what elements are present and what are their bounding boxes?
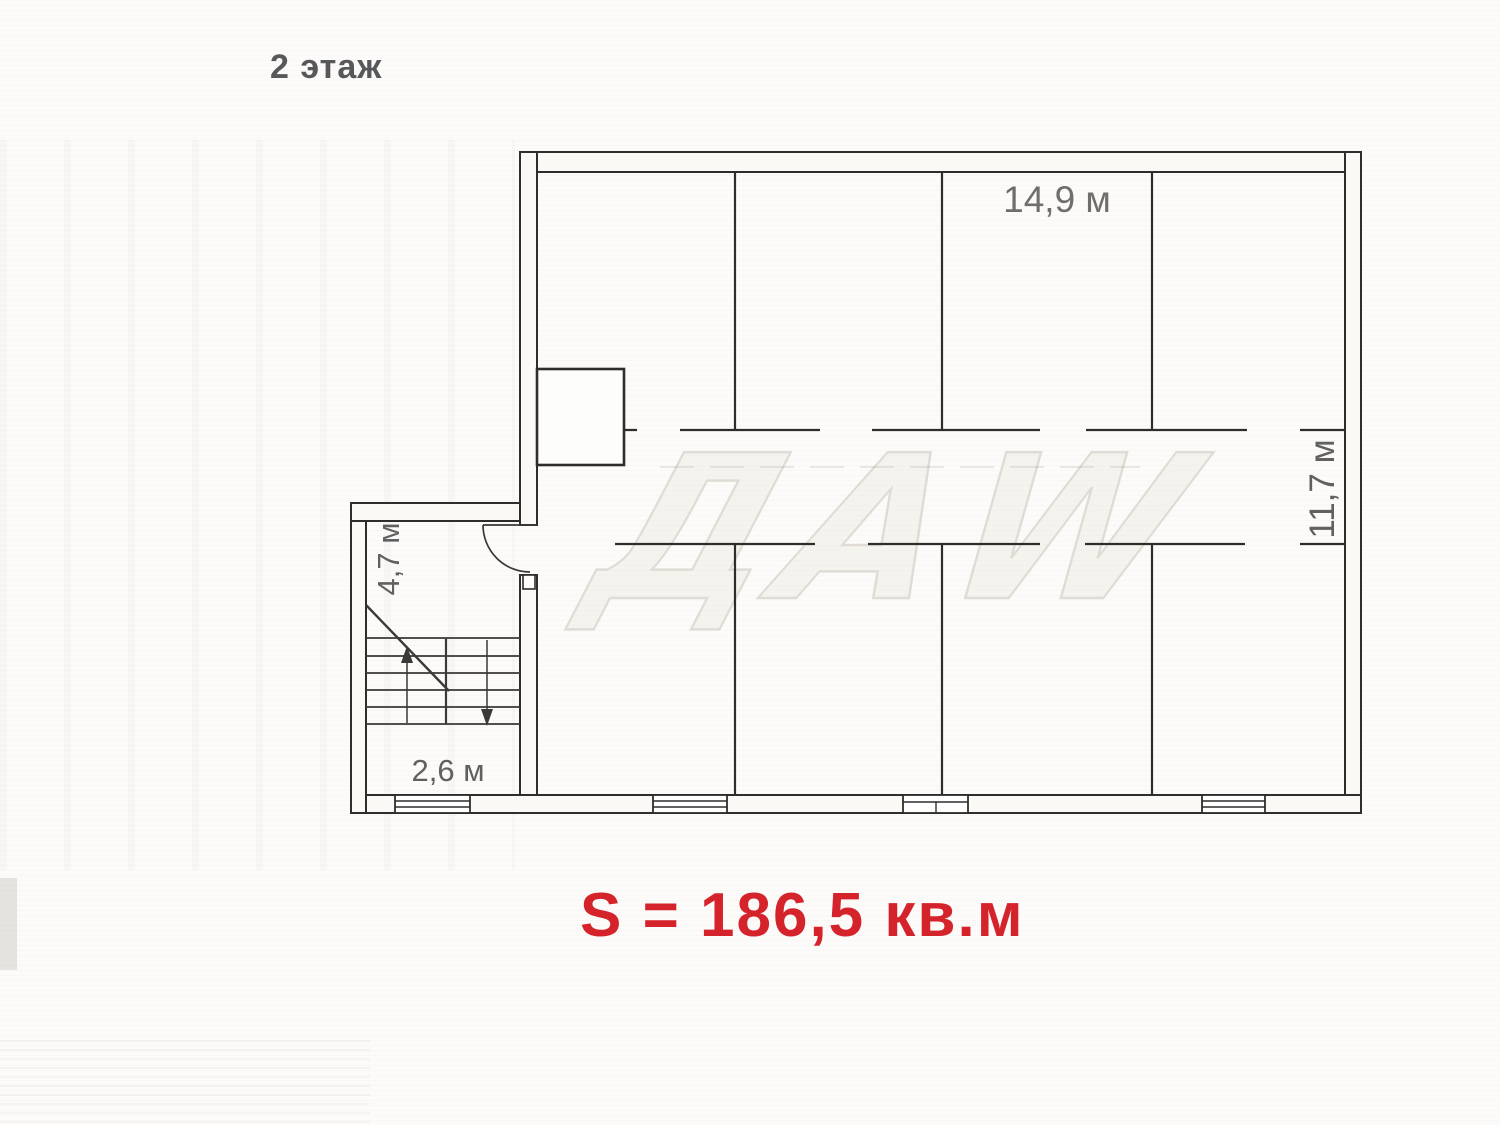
window-room-left	[653, 795, 727, 813]
wall-top	[520, 152, 1361, 172]
stair-up-arrow	[401, 646, 413, 723]
dim-label-right-depth: 11,7 м	[1303, 439, 1343, 538]
scanned-floor-plan-page: 2 этаж ДАW	[0, 0, 1500, 1125]
wall-annex-top	[351, 503, 520, 521]
stair-treads	[366, 638, 520, 724]
stair-down-arrow	[481, 640, 493, 726]
dim-label-top-room: 14,9 м	[1003, 179, 1111, 221]
door-jambs	[520, 525, 537, 575]
door-jamb-block	[523, 575, 535, 589]
stair-door	[483, 525, 537, 589]
wall-annex-left	[351, 503, 366, 813]
staircase	[366, 605, 520, 726]
window-stairwell	[395, 795, 470, 813]
watermark-text: ДАW	[559, 414, 1230, 646]
closet-box	[537, 369, 624, 465]
floor-plan-drawing: ДАW	[0, 0, 1500, 1125]
window-room-right	[1202, 795, 1265, 813]
wall-left-upper	[520, 152, 537, 525]
dim-label-landing-width: 2,6 м	[411, 753, 484, 789]
door-swing-arc	[483, 525, 530, 572]
window-room-middle	[903, 795, 968, 813]
total-area-label: S = 186,5 кв.м	[580, 880, 1025, 951]
wall-right	[1345, 152, 1361, 813]
wall-left-lower	[520, 575, 537, 795]
dim-label-stairwell-width: 4,7 м	[371, 522, 407, 595]
